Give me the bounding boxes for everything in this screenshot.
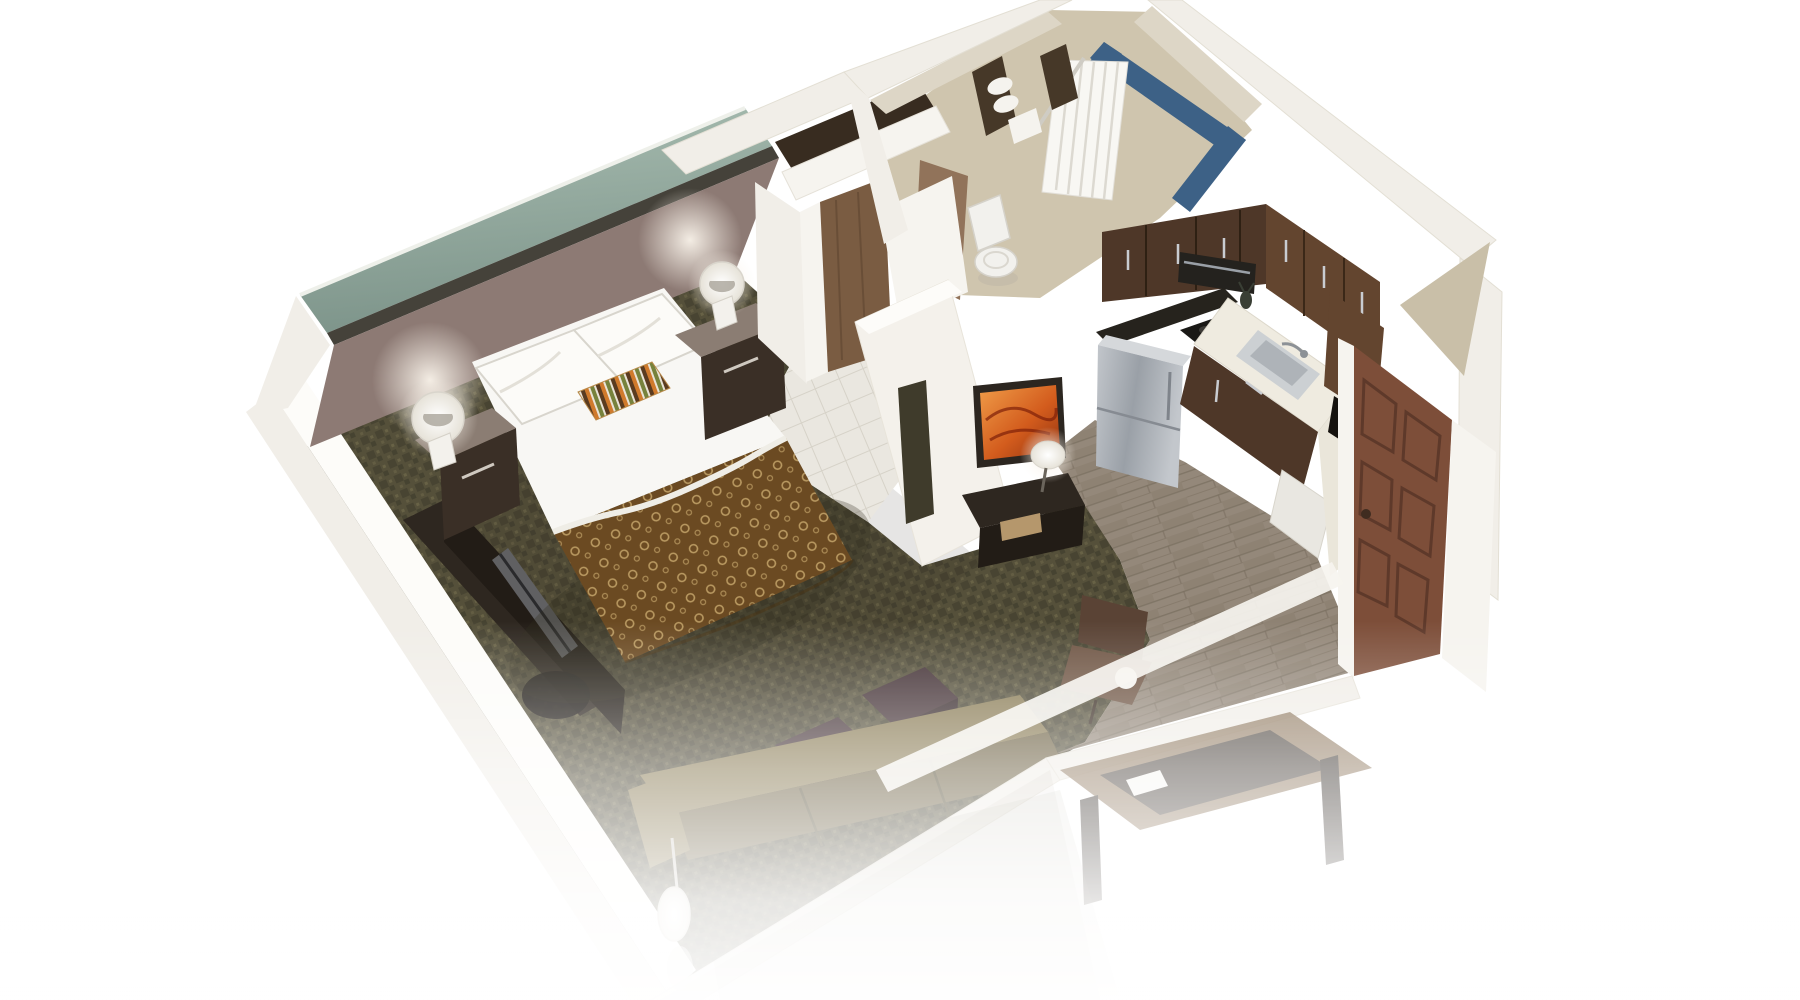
white-fade-overlay — [0, 0, 1800, 1000]
floor-plan-page — [0, 0, 1800, 1000]
floor-plan-rendering — [0, 0, 1800, 1000]
